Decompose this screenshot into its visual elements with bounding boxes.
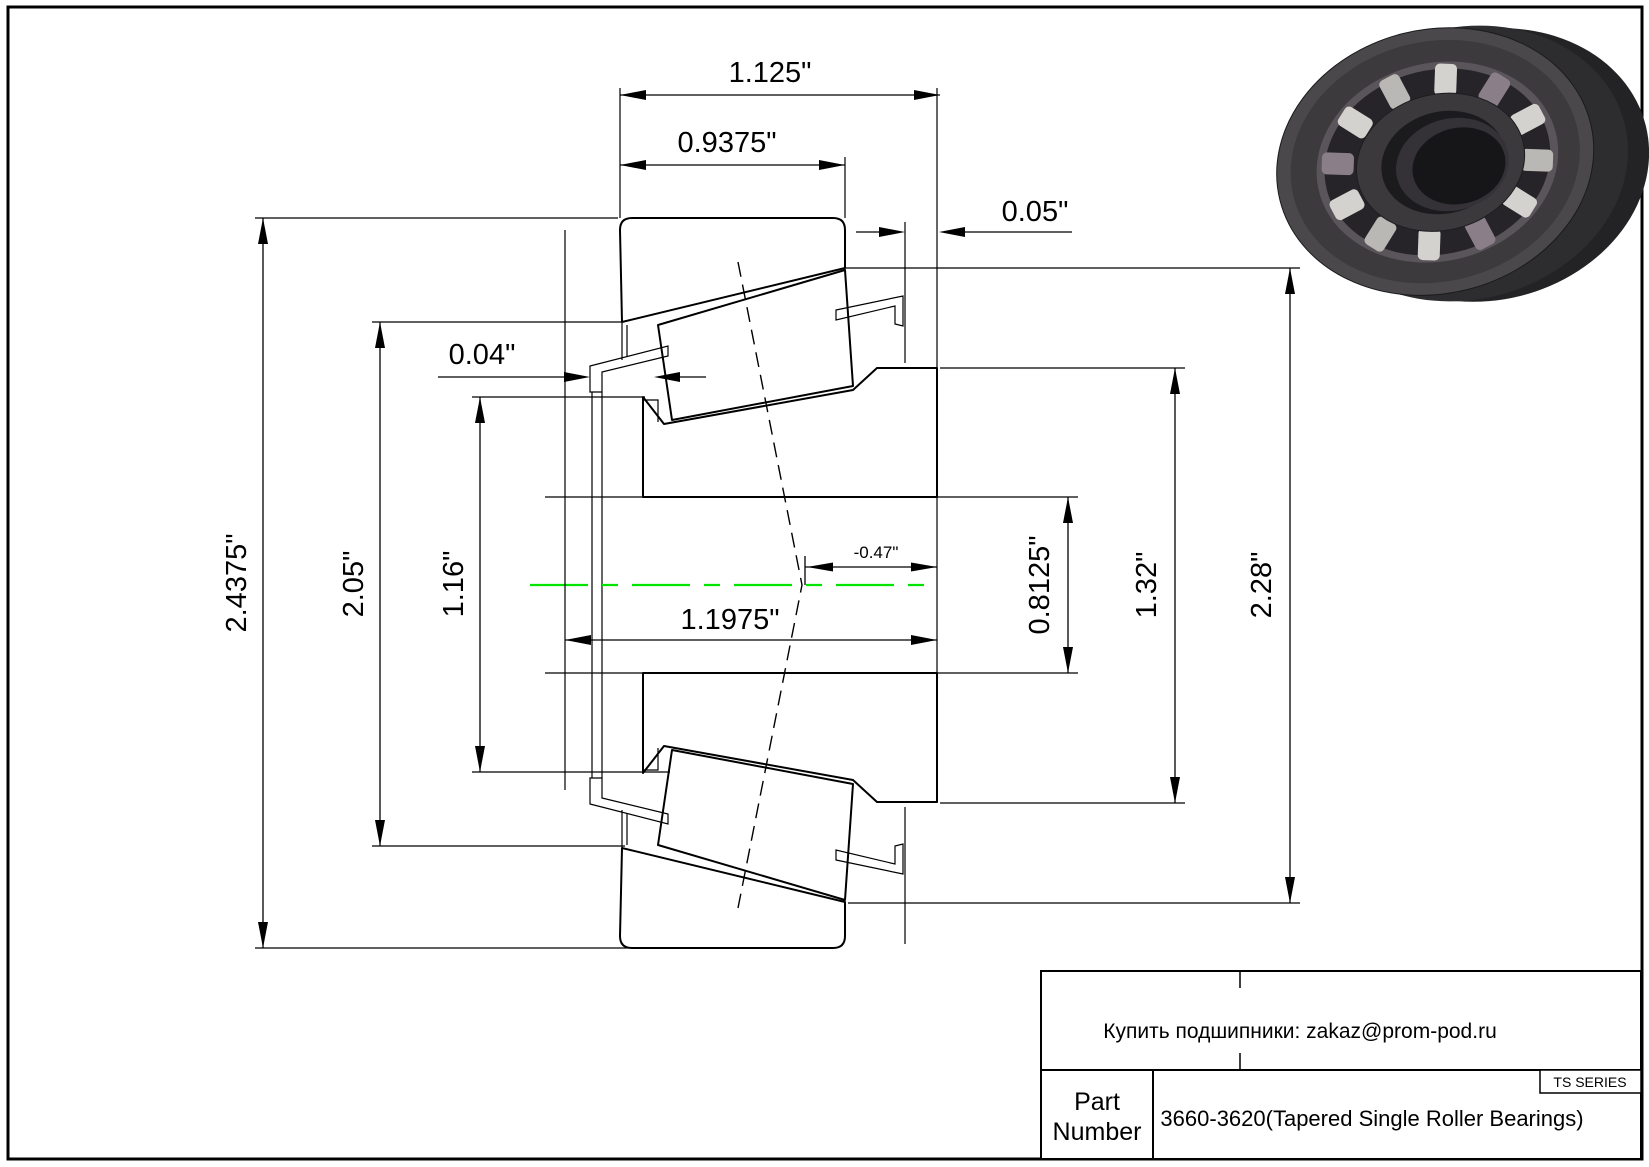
dim-flange-od-label: 2.4375" xyxy=(221,534,253,633)
dim-effective-center: -0.47" xyxy=(805,543,937,585)
part-roller-bottom xyxy=(658,750,853,900)
dim-bore-label: 0.8125" xyxy=(1024,536,1056,635)
part-roller-top xyxy=(658,270,853,420)
dim-flange-od: 2.4375" xyxy=(221,218,268,948)
dim-cone-standout: 0.05" xyxy=(856,196,1072,237)
series-label: TS SERIES xyxy=(1553,1074,1626,1090)
dim-cup-width-label: 0.9375" xyxy=(678,127,777,159)
dim-cage-clearance: 0.04" xyxy=(438,339,706,382)
dim-overall-width: 1.125" xyxy=(620,57,940,100)
dim-cone-od-label: 1.32" xyxy=(1131,552,1163,619)
dim-cup-front-od: 2.05" xyxy=(338,322,385,846)
part-cage-bottom-left xyxy=(590,778,668,824)
technical-drawing: 1.125" 0.9375" 0.05" 0.04" 2.4375" 2.05" xyxy=(0,0,1649,1167)
part-cage-bottom-right xyxy=(836,844,903,874)
part-cone-bottom xyxy=(643,673,937,802)
bearing-photo-roller xyxy=(1521,149,1554,172)
part-number-label-line1: Part xyxy=(1074,1088,1120,1116)
dim-cone-rib-od-label: 1.16" xyxy=(438,551,470,618)
title-block: TS SERIES Купить подшипники: zakaz@prom-… xyxy=(1041,971,1641,1159)
bearing-photo-roller xyxy=(1418,228,1441,261)
dim-cage-clearance-label: 0.04" xyxy=(449,339,516,371)
cone-notch-top xyxy=(643,400,658,422)
bearing-photo-roller xyxy=(1321,152,1354,175)
dim-cup-od-label: 2.28" xyxy=(1246,552,1278,619)
dim-cage-width-label: 1.1975" xyxy=(681,604,780,636)
part-cage-top-right xyxy=(836,296,903,326)
dim-cup-front-od-label: 2.05" xyxy=(338,551,370,618)
dim-cup-width: 0.9375" xyxy=(620,127,845,170)
dim-cage-width: 1.1975" xyxy=(565,604,937,645)
drawing-page: 1.125" 0.9375" 0.05" 0.04" 2.4375" 2.05" xyxy=(0,0,1649,1167)
part-cup-bottom xyxy=(620,848,845,948)
part-number-value: 3660-3620(Tapered Single Roller Bearings… xyxy=(1160,1106,1583,1131)
cone-notch-bottom xyxy=(643,748,658,770)
dim-cone-standout-label: 0.05" xyxy=(1002,196,1069,228)
contact-text: Купить подшипники: zakaz@prom-pod.ru xyxy=(1103,1020,1497,1043)
bearing-photo xyxy=(1248,0,1649,347)
dim-cone-rib-od: 1.16" xyxy=(438,397,485,772)
bearing-photo-roller xyxy=(1434,63,1457,96)
dim-effective-center-label: -0.47" xyxy=(854,543,899,562)
dim-overall-width-label: 1.125" xyxy=(729,57,812,89)
dim-cup-od: 2.28" xyxy=(1246,268,1295,903)
part-cup-top xyxy=(620,218,845,322)
bearing-cross-section xyxy=(530,218,937,948)
part-cone-top xyxy=(643,368,937,497)
part-cage-top-left xyxy=(590,346,668,392)
dim-cone-od: 1.32" xyxy=(1131,368,1180,803)
dim-bore: 0.8125" xyxy=(1024,497,1073,673)
part-number-label-line2: Number xyxy=(1053,1118,1142,1146)
